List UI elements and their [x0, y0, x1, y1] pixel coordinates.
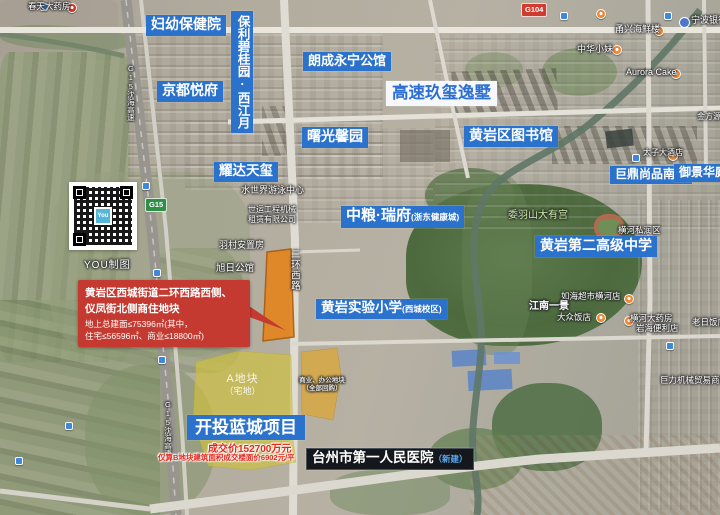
road-label-shenhai-south: G15沈海高速: [163, 400, 172, 457]
map-attribution: YOU制图: [84, 260, 131, 273]
map-text-ningbo-bank: 宁波银行: [691, 15, 720, 26]
map-text-shiyun-line1: 世运工程机械: [248, 205, 296, 215]
map-text-juli: 巨力机械贸易商行: [660, 375, 720, 386]
map-text-chuntian: 春天大药房: [28, 1, 71, 12]
road-label-shenhai-north: G15沈海高速: [126, 64, 135, 121]
land-parcel-annotation: 黄岩区西城街道二环西路西侧、 仪凤街北侧商住地块 地上总建面≤75396㎡(其中…: [78, 280, 250, 347]
qr-finder-bottomleft: [73, 233, 86, 246]
label-kaitou-lancheng: 开投蓝城项目: [187, 415, 305, 440]
map-text-shiyun: 世运工程机械 租赁有限公司: [248, 205, 296, 225]
annotated-satellite-map: A地块 （宅地） 商业、办公地块 （全部回购） 妇幼保健院 保利碧桂园·西江月 …: [0, 0, 720, 515]
road-y340: [290, 336, 720, 344]
qr-code: You: [69, 182, 137, 250]
label-shiyan-name: 黄岩实验小学: [321, 300, 402, 315]
annotation-title-line2: 仪凤街北侧商住地块: [85, 302, 243, 318]
map-lines-layer: [0, 0, 720, 515]
road-label-erhuanxilu: 二环西路: [288, 249, 300, 291]
label-shuguang-xinyuan: 曙光馨园: [302, 127, 368, 148]
map-text-yongxing: 甬兴海鲜楼: [615, 24, 660, 35]
river-main: [473, 10, 700, 515]
road-yifeng: [295, 250, 360, 252]
label-langcheng-yongning: 朗成永宁公馆: [303, 52, 391, 71]
deal-floorprice-text: 仅算B地块建筑面积成交楼面价6902元/平: [158, 452, 295, 463]
label-yujing-huating: 御景华庭: [674, 164, 720, 182]
road-mid-horizontal: [228, 108, 720, 122]
road-bottom-west: [0, 491, 150, 509]
map-text-zhonghua: 中华小妹: [577, 44, 613, 55]
transit-stop-icon: [15, 457, 23, 465]
transit-stop-icon: [666, 342, 674, 350]
map-text-ruhai: 如海超市横河店: [561, 291, 621, 302]
annotation-detail-line2: 住宅≤56596㎡、商业≤18800㎡): [85, 330, 243, 342]
label-fuyou-baojianyuan: 妇幼保健院: [146, 15, 226, 36]
label-zhongliang-ruifu: 中粮·瑞府(浙东健康城): [341, 206, 464, 228]
poi-marker-icon: [624, 294, 634, 304]
label-shiyan-xiaoxue: 黄岩实验小学(西城校区): [316, 299, 447, 319]
map-text-henghe: 横河私润区: [618, 225, 661, 236]
river-west-stream: [0, 34, 124, 56]
parcel-a-type: （宅地）: [205, 386, 280, 398]
label-huangyan-library: 黄岩区图书馆: [464, 126, 558, 147]
map-text-yucun: 羽村安置房: [219, 240, 264, 251]
annotation-title-line1: 黄岩区西城街道二环西路西侧、: [85, 286, 243, 302]
parcel-commercial-caption: 商业、办公地块 （全部回购）: [296, 377, 348, 394]
transit-stop-icon: [664, 12, 672, 20]
map-text-dazhong: 大众饭店: [557, 312, 591, 323]
poi-marker-icon: [596, 9, 606, 19]
map-text-xuri: 旭日公馆: [216, 263, 254, 275]
transit-stop-icon: [158, 356, 166, 364]
qr-center-logo: You: [94, 207, 112, 225]
transit-stop-icon: [65, 422, 73, 430]
map-text-shiyun-line2: 租赁有限公司: [248, 215, 296, 225]
map-text-aurora-cake: Aurora Cake: [626, 67, 677, 78]
map-text-weiyushan: 委羽山大有宫: [508, 210, 568, 223]
qr-finder-topright: [120, 186, 133, 199]
label-hospital: 台州市第一人民医院（新建）: [306, 448, 474, 470]
label-baoli-biguiyuan: 保利碧桂园·西江月: [231, 11, 253, 133]
transit-stop-icon: [142, 182, 150, 190]
map-text-yanhai: 岩海便利店: [636, 323, 679, 334]
transit-stop-icon: [153, 269, 161, 277]
map-text-laori: 老日饭店: [692, 317, 720, 328]
annotation-detail-line1: 地上总建面≤75396㎡(其中，: [85, 318, 243, 330]
parcel-a-name: A地块: [205, 372, 280, 386]
label-dier-gaozhong: 黄岩第二高级中学: [535, 236, 657, 257]
label-zhongliang-name: 中粮·瑞府: [346, 207, 411, 224]
bank-marker-icon: [679, 17, 690, 28]
label-yaoda-tianxi: 耀达天玺: [214, 162, 278, 182]
qr-finder-topleft: [73, 186, 86, 199]
road-shield-g15: G15: [145, 198, 167, 212]
label-shiyan-suffix: (西城校区): [402, 304, 442, 314]
map-text-taizi-hotel: 太子大酒店: [643, 148, 683, 158]
label-hospital-name: 台州市第一人民医院: [312, 450, 434, 465]
parcel-commercial-type: （全部回购）: [296, 385, 348, 393]
parcel-a-caption: A地块 （宅地）: [205, 372, 280, 398]
transit-stop-icon: [560, 12, 568, 20]
poi-marker-icon: [612, 45, 622, 55]
poi-marker-icon: [596, 313, 606, 323]
label-hospital-suffix: （新建）: [434, 454, 468, 464]
map-text-shuishijie: 水世界游泳中心: [241, 185, 304, 196]
map-text-jinfangyuan: 金方源: [697, 112, 720, 122]
label-jingdu-yuefu: 京都悦府: [157, 81, 223, 102]
label-zhongliang-suffix: (浙东健康城): [411, 212, 459, 222]
road-shield-g104: G104: [521, 3, 547, 17]
label-gaosu-jiuxi: 高速玖玺逸墅: [386, 81, 497, 106]
transit-stop-icon: [632, 154, 640, 162]
